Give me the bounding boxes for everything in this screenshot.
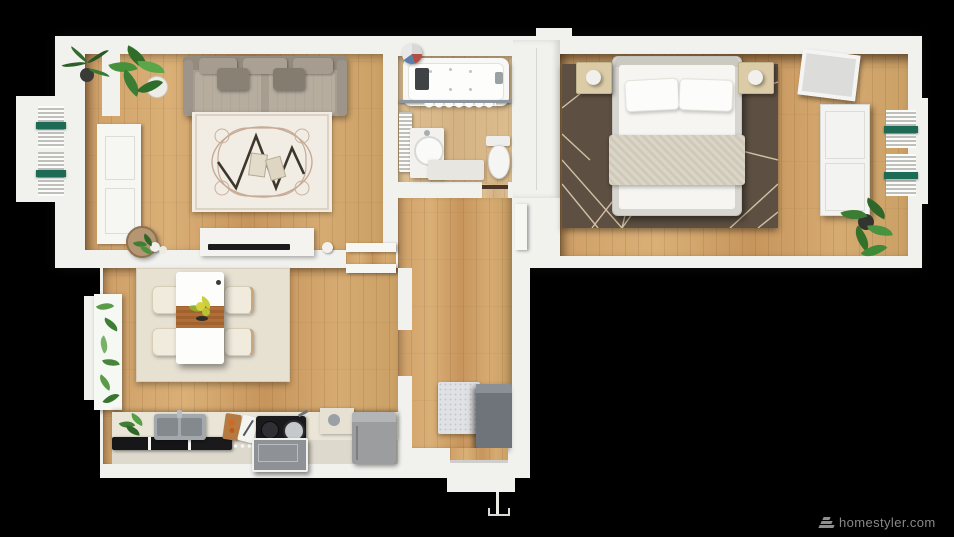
bath-mat [428, 160, 484, 180]
wall-hall-bedroom-bottom [513, 248, 526, 268]
radiator-green-shelf [36, 122, 66, 129]
wall-kitchen-hall-lower [398, 376, 412, 448]
leaf-print-curtain [94, 294, 122, 410]
tub-caddy [415, 68, 429, 90]
sofa [183, 56, 347, 116]
watermark: homestyler.com [818, 512, 948, 532]
rug-pattern [192, 112, 332, 212]
homestyler-layers-icon [818, 516, 834, 529]
table-lamp [586, 70, 601, 85]
potted-plant-spiky [60, 50, 112, 94]
tub-jet [429, 70, 432, 73]
dining-table [176, 272, 224, 364]
wardrobe-door-panel [825, 111, 865, 159]
pan [261, 421, 279, 439]
entry-step [447, 476, 515, 492]
kitchen-sink [154, 414, 206, 440]
shower-curtain [424, 103, 496, 112]
radiator-green-shelf [884, 172, 918, 179]
radiator-green-shelf [884, 126, 918, 133]
bathroom-door-threshold [482, 185, 508, 189]
decor-sphere [322, 242, 333, 253]
tv-console [200, 228, 314, 256]
pot [328, 414, 340, 426]
living-area-rug [192, 112, 332, 212]
gray-tall-cabinet [352, 412, 396, 464]
knife [243, 420, 254, 436]
tub-jet [449, 88, 452, 91]
entry-threshold [450, 460, 508, 463]
wardrobe [820, 104, 870, 216]
tv-panel [208, 244, 290, 250]
small-plant [132, 234, 158, 258]
leaning-mirror [797, 49, 860, 102]
tub-jet [469, 70, 472, 73]
textured-blanket [609, 135, 745, 185]
entry-door-stop [488, 508, 510, 516]
nightstand-right [738, 62, 774, 94]
tub-jet [469, 88, 472, 91]
sofa-arm-left [183, 60, 193, 116]
wall-kitchen-hall-upper [398, 268, 412, 330]
radiator-green-shelf [36, 170, 66, 177]
dining-chair [224, 286, 254, 314]
table-decor-item [216, 280, 221, 285]
sofa-throw-pillow [217, 68, 249, 90]
potted-plant-broadleaf [108, 50, 170, 102]
nightstand-left [576, 62, 612, 94]
basin-faucet [424, 130, 430, 136]
kitchen-cart [252, 438, 308, 472]
sofa-arm-right [337, 60, 347, 116]
wall-living-bathroom [383, 36, 398, 196]
dining-door-leaf [346, 264, 396, 273]
decor-sphere [159, 246, 167, 254]
sink-faucet [177, 410, 182, 418]
towel-basket [402, 44, 422, 64]
closet-door-seam [536, 48, 537, 190]
shoe-cabinet [476, 384, 512, 448]
cabinet-top-face [352, 412, 396, 422]
double-bed [612, 56, 742, 216]
bedroom-door-leaf [515, 204, 527, 250]
dining-chair [224, 328, 254, 356]
living-door-leaf [346, 243, 396, 252]
balcony-door-leaf [97, 124, 141, 244]
bedroom-plant [842, 202, 896, 264]
sofa-throw-pillow [273, 68, 305, 90]
door-panel [105, 136, 135, 180]
cream-cabinet [320, 408, 354, 434]
doormat [438, 382, 480, 434]
pillow-left [624, 78, 680, 113]
bedroom-window-radiator [876, 98, 928, 204]
cabinet-handle [356, 426, 358, 460]
toilet-bowl [488, 145, 510, 179]
living-window-radiator [16, 96, 60, 202]
cabinet-top-face [476, 384, 512, 393]
door-panel [105, 188, 135, 234]
decor-bowl [196, 316, 208, 321]
tub-faucet [495, 72, 503, 84]
sink-basin [157, 418, 178, 436]
cart-shelf [258, 444, 298, 462]
pillow-right [678, 78, 733, 112]
floorplan-canvas[interactable]: homestyler.com [0, 0, 954, 537]
flower-centerpiece [188, 294, 214, 322]
tub-jet [449, 68, 452, 71]
watermark-text: homestyler.com [839, 515, 936, 530]
table-lamp [748, 70, 763, 85]
bathtub [403, 58, 509, 106]
sink-basin [181, 418, 202, 436]
wall-bathroom-bottom-left [383, 182, 482, 198]
counter-plant [118, 412, 150, 438]
